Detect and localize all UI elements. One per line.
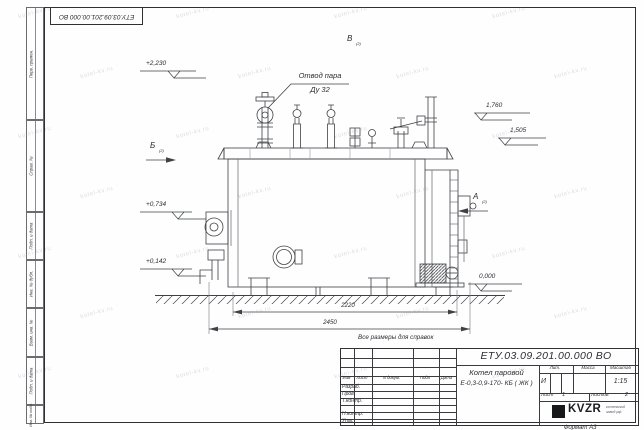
view-label-b: Б: [150, 142, 155, 150]
margin-label: Взам. инв. №: [29, 319, 34, 346]
top-stamp-box: ЕТУ.03.09.201.00.000 ВО: [50, 7, 143, 25]
dimension-overall: 2450: [300, 320, 360, 326]
drawing-sheet: Перв. примен. Справ. № Подп. и дата Инв.…: [0, 0, 644, 430]
elevation-label-steam: 1,760: [486, 103, 502, 110]
sheet-value: 1: [562, 393, 565, 399]
margin-label: Инв. № подл.: [29, 403, 33, 427]
view-label-v: В: [347, 35, 352, 43]
margin-label: Справ. №: [29, 156, 34, 176]
mass-header: Масса: [572, 366, 604, 371]
margin-box-inv-podl: Инв. № подл.: [26, 405, 44, 424]
steam-outlet-callout-line1: Отвод пара: [291, 72, 349, 80]
margin-box-podp-data-1: Подп. и дата: [26, 212, 44, 260]
elevation-label-low: +0,142: [146, 259, 166, 266]
kvzr-logo-icon: [552, 405, 565, 418]
margin-label: Подп. и дата: [29, 223, 34, 250]
lit-value: И: [538, 378, 549, 385]
reference-note: Все размеры для справок: [358, 335, 433, 341]
margin-box-sprav-no: Справ. №: [26, 120, 44, 212]
dimension-inner: 2220: [318, 303, 378, 309]
title-doc-number: ЕТУ.03.09.201.00.000 ВО: [456, 351, 636, 362]
margin-box-inv-dubl: Инв. № дубл.: [26, 260, 44, 308]
sheet-label: Лист: [541, 394, 553, 399]
view-label-v-suffix: (2): [356, 42, 361, 46]
margin-label: Перв. примен.: [29, 49, 34, 78]
margin-box-podp-data-2: Подп. и дата: [26, 357, 44, 405]
margin-box-perv-primen: Перв. примен.: [26, 7, 44, 120]
view-label-b-suffix: (2): [159, 149, 164, 153]
col-header-ndoc: N докум.: [371, 376, 412, 380]
margin-label: Подп. и дата: [29, 368, 34, 395]
row-label-razrab: Разраб.: [342, 385, 360, 390]
elevation-label-ground: 0,000: [479, 274, 495, 281]
elevation-label-top: +2,230: [146, 61, 166, 68]
margin-label: Инв. № дубл.: [29, 271, 34, 297]
title-product-name-line1: Котел паровой: [456, 369, 537, 377]
kvzr-logo-text: KVZR: [568, 404, 601, 416]
row-label-nkontr: Н.контр.: [342, 412, 363, 417]
scale-value: 1:15: [604, 378, 637, 385]
col-header-list: Лист: [353, 376, 371, 380]
elevation-label-mid: 1,505: [510, 128, 526, 135]
steam-outlet-callout-line2: Ду 32: [291, 86, 349, 94]
logo-subtext-line2: завод рф: [606, 411, 621, 415]
col-header-podp: Подп: [412, 376, 438, 380]
col-header-data: Дата: [438, 376, 455, 380]
scale-header: Масштаб: [604, 366, 637, 371]
margin-box-vzam-inv: Взам. инв. №: [26, 308, 44, 357]
elevation-label-burner: +0,734: [146, 202, 166, 209]
row-label-tkontr: Т.контр.: [342, 399, 362, 404]
row-label-prov: Пров.: [342, 392, 355, 397]
view-label-a-suffix: (2): [482, 200, 487, 204]
sheets-value: 2: [625, 393, 628, 399]
sheets-label: Листов: [591, 394, 608, 399]
title-product-name-line2: Е-0,3-0,9-170- КБ ( ЖК ): [456, 381, 537, 388]
top-stamp-number: ЕТУ.03.09.201.00.000 ВО: [59, 13, 134, 20]
row-label-utv: Утв.: [342, 419, 353, 424]
col-header-izm: Изм: [340, 376, 353, 380]
view-label-a: А: [473, 193, 478, 201]
lit-header: Лит.: [538, 366, 572, 371]
